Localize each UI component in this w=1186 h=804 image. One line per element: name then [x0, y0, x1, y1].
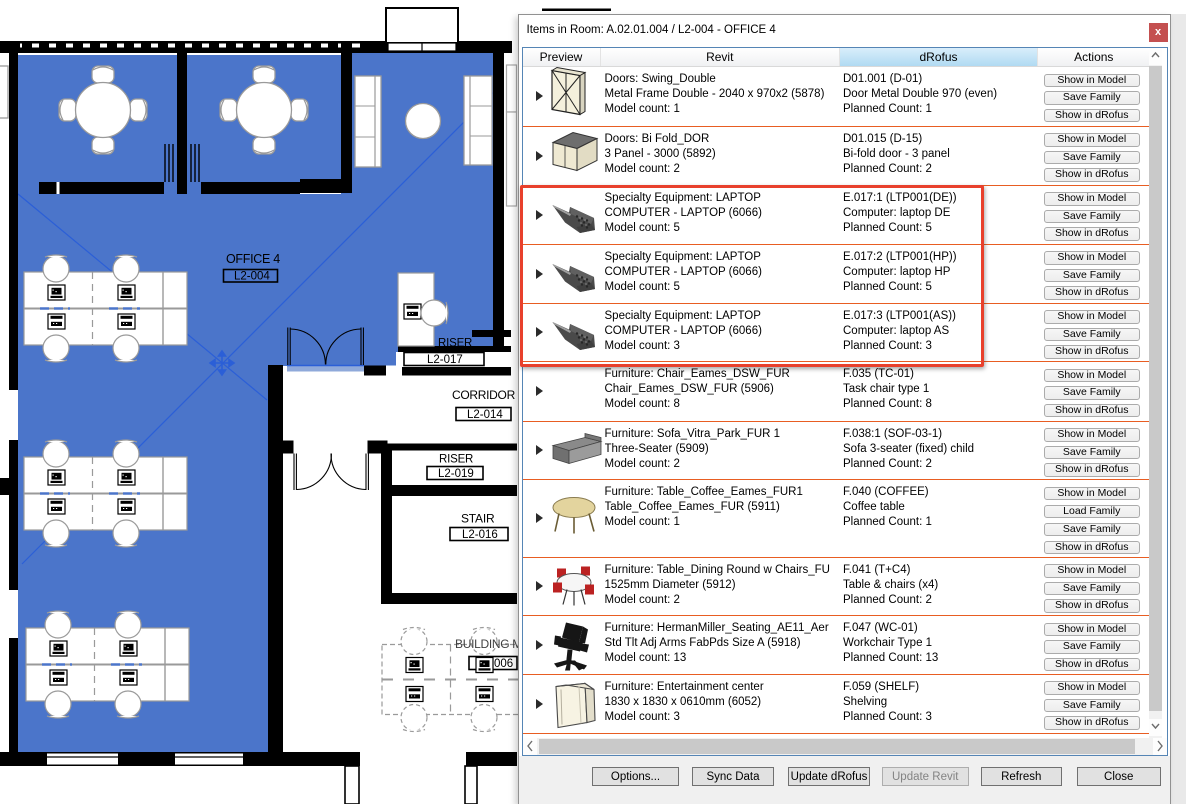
svg-text:L2-019: L2-019 [438, 468, 474, 480]
svg-text:L2-014: L2-014 [467, 409, 503, 421]
svg-text:CORRIDOR: CORRIDOR [452, 388, 516, 402]
svg-text:OFFICE 4: OFFICE 4 [226, 252, 280, 266]
svg-text:006: 006 [494, 658, 513, 670]
svg-text:L2-004: L2-004 [234, 271, 270, 283]
svg-text:STAIR: STAIR [461, 512, 495, 526]
svg-text:RISER: RISER [439, 454, 473, 466]
svg-text:L2-017: L2-017 [427, 354, 463, 366]
svg-text:L2-016: L2-016 [462, 529, 498, 541]
svg-text:RISER: RISER [438, 338, 472, 350]
